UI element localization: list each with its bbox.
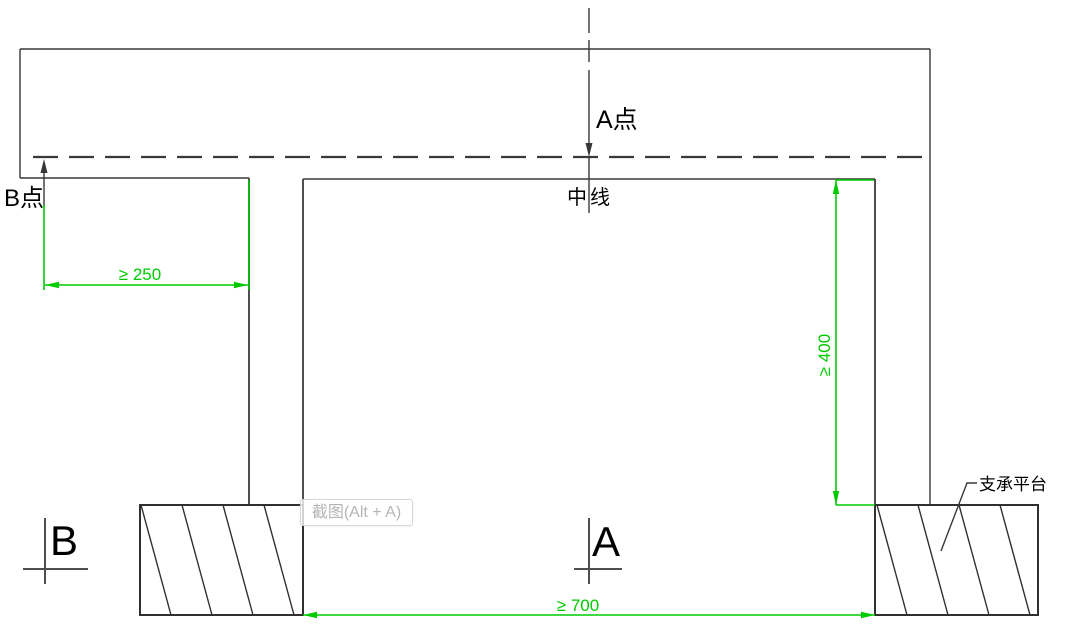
section-b-label: B [50,517,78,564]
dimension-400-bottom-arrowhead [833,491,839,505]
support-platform-label: 支承平台 [979,475,1047,494]
dimension-700-value: ≥ 700 [557,596,599,615]
support-block-right [875,505,1038,615]
dimension-700-right-arrowhead [861,612,875,618]
dimension-drop-height: ≥ 400 [815,180,875,505]
dimension-700-left-arrowhead [303,612,317,618]
dimension-250-value: ≥ 250 [119,265,161,284]
drawing-canvas: ≥ 250 ≥ 400 ≥ 700 B A A点 B点 中线 [0,0,1080,633]
dimension-250-right-arrowhead [234,282,248,288]
dimension-b-edge-distance: ≥ 250 [44,180,249,290]
dimension-400-stubs [836,180,875,505]
screenshot-hint-text: 截图(Alt + A) [312,504,401,521]
table-legs [249,178,875,505]
technical-drawing: ≥ 250 ≥ 400 ≥ 700 B A A点 B点 中线 [0,0,1080,633]
support-block-right-outline [875,505,1038,615]
dimension-400-top-arrowhead [833,180,839,194]
b-point-arrowhead [41,159,48,173]
centerline-label: 中线 [567,186,613,209]
dimension-support-span: ≥ 700 [303,596,875,618]
section-a-label: A [592,518,620,565]
b-point-label: B点 [4,185,44,212]
screenshot-hint-tooltip[interactable]: 截图(Alt + A) [300,499,413,526]
a-point-label: A点 [596,106,638,134]
dimension-250-left-arrowhead [45,282,59,288]
dimension-400-value: ≥ 400 [815,334,834,376]
support-block-left [140,505,303,615]
a-point-arrowhead [586,143,593,157]
